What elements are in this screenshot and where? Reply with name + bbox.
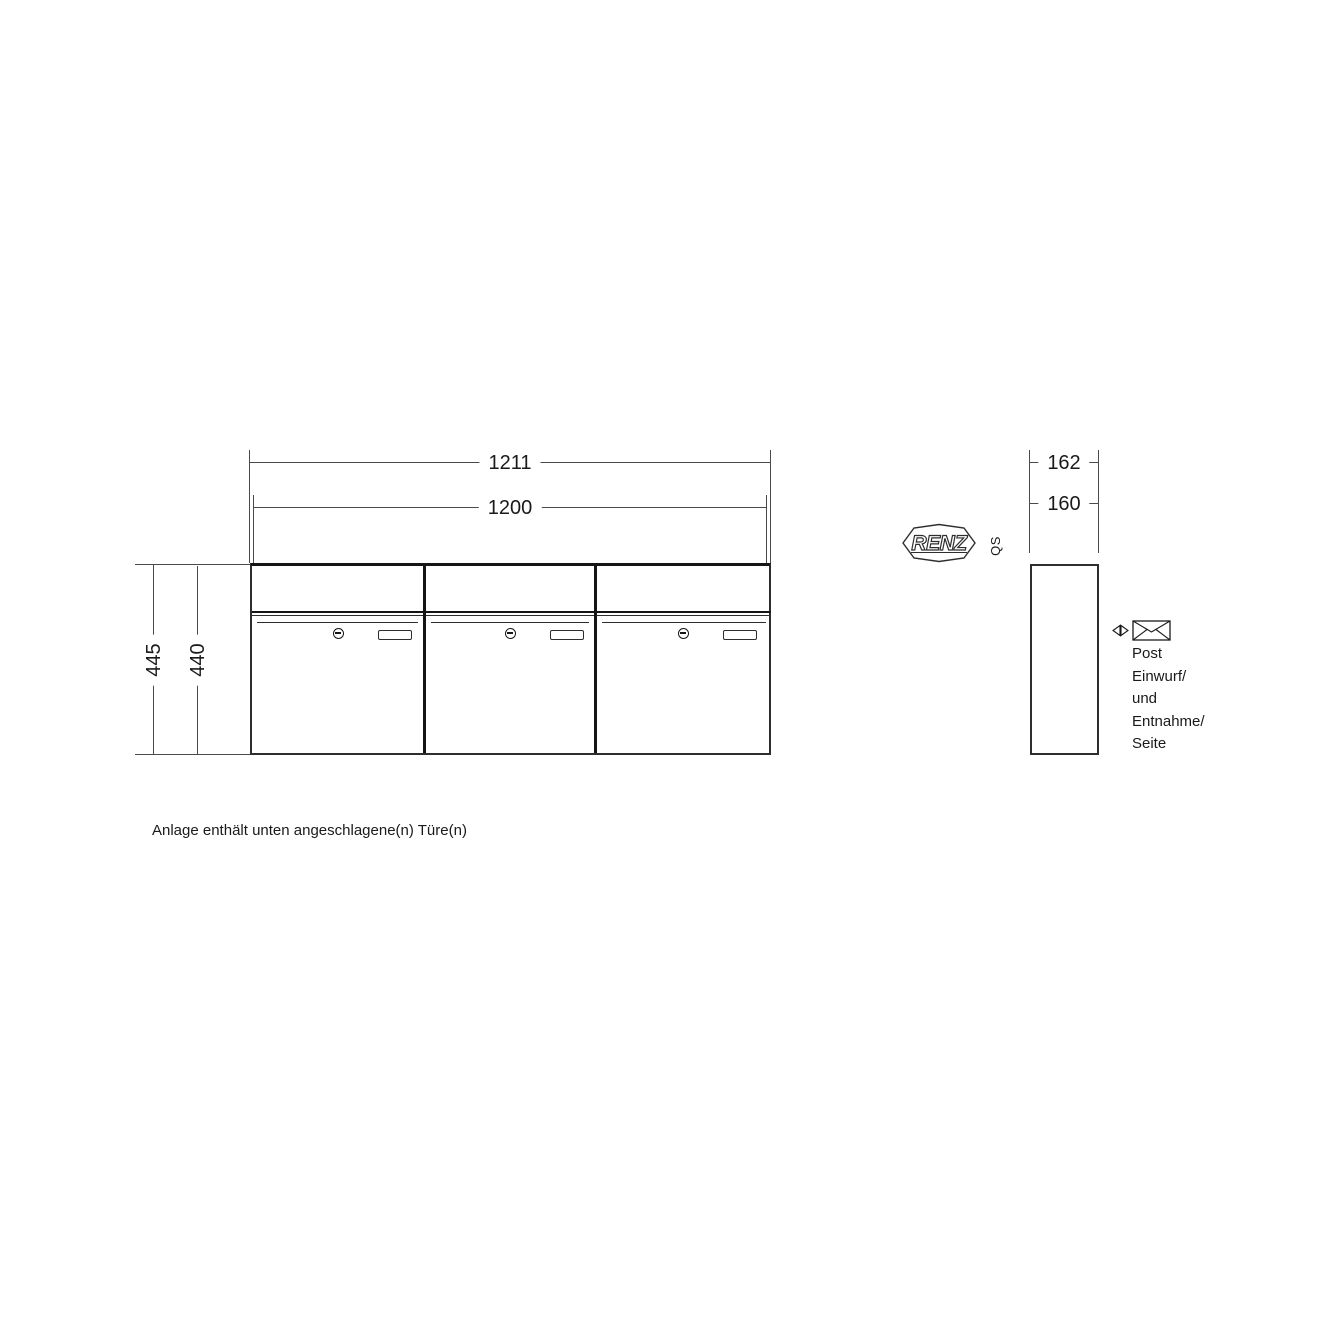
mailbox-front-view (250, 563, 771, 755)
extension-line-1211-left (249, 450, 250, 563)
qs-label: QS (988, 526, 1004, 566)
keyslot-icon (507, 632, 513, 634)
renz-logo: RENZ (902, 523, 976, 563)
post-note-line: Entnahme/ (1132, 711, 1205, 734)
door-hinge-line-2 (431, 622, 589, 623)
lock-cylinder-2 (505, 628, 516, 639)
door-top-edge-1 (252, 615, 423, 616)
hood-separator-1 (252, 611, 423, 613)
left-right-arrows-icon (1112, 624, 1129, 637)
door-top-edge-3 (597, 615, 771, 616)
post-note-line: und (1132, 688, 1205, 711)
logo-text: RENZ (911, 532, 968, 555)
dimension-label-height-outer: 445 (142, 634, 166, 685)
technical-drawing-page: { "front_view": { "width_outer": "1211",… (0, 0, 1320, 1320)
name-plate-1 (378, 630, 412, 640)
door-hinge-line-3 (602, 622, 766, 623)
extension-line-depth-left (1029, 450, 1030, 553)
dimension-label-depth-outer: 162 (1038, 453, 1089, 473)
hood-separator-3 (597, 611, 771, 613)
lock-cylinder-1 (333, 628, 344, 639)
door-hinge-line-1 (257, 622, 418, 623)
lock-cylinder-3 (678, 628, 689, 639)
dimension-label-depth-inner: 160 (1038, 494, 1089, 514)
name-plate-2 (550, 630, 584, 640)
extension-line-depth-right (1098, 450, 1099, 553)
keyslot-icon (680, 632, 686, 634)
post-note-line: Post (1132, 643, 1205, 666)
compartment-divider-2 (594, 566, 597, 753)
dimension-label-width-inner: 1200 (479, 498, 542, 518)
compartment-divider-1 (423, 566, 426, 753)
post-note-line: Seite (1132, 733, 1205, 756)
dimension-label-width-outer: 1211 (479, 453, 540, 473)
extension-line-1200-left (253, 495, 254, 563)
extension-line-1211-right (770, 450, 771, 563)
dimension-label-height-inner: 440 (186, 634, 210, 685)
name-plate-3 (723, 630, 757, 640)
extension-line-1200-right (766, 495, 767, 563)
post-note-line: Einwurf/ (1132, 666, 1205, 689)
hinge-note: Anlage enthält unten angeschlagene(n) Tü… (152, 822, 467, 839)
mailbox-side-view (1030, 564, 1099, 755)
hood-separator-2 (426, 611, 594, 613)
post-access-note: Post Einwurf/ und Entnahme/ Seite (1132, 643, 1205, 756)
envelope-icon (1132, 620, 1171, 641)
keyslot-icon (335, 632, 341, 634)
door-top-edge-2 (426, 615, 594, 616)
